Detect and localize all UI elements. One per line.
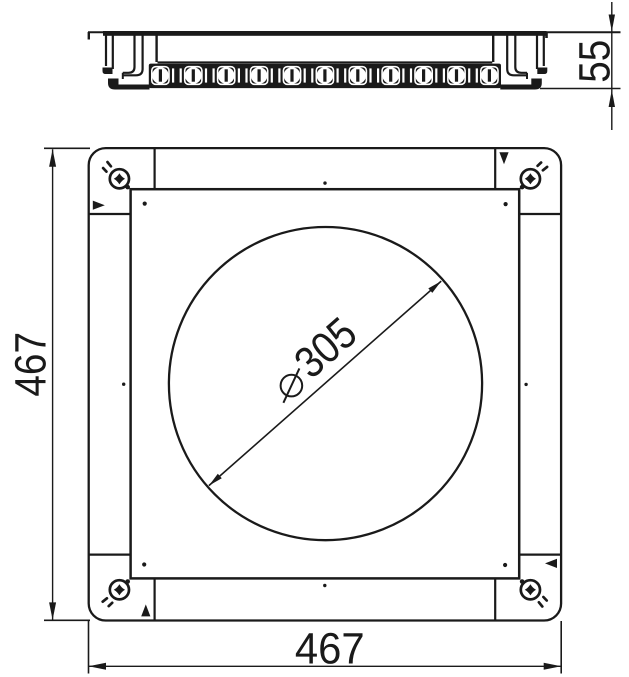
svg-text:467: 467 [6,332,55,397]
svg-text:55: 55 [571,40,620,83]
svg-text:467: 467 [295,625,365,674]
